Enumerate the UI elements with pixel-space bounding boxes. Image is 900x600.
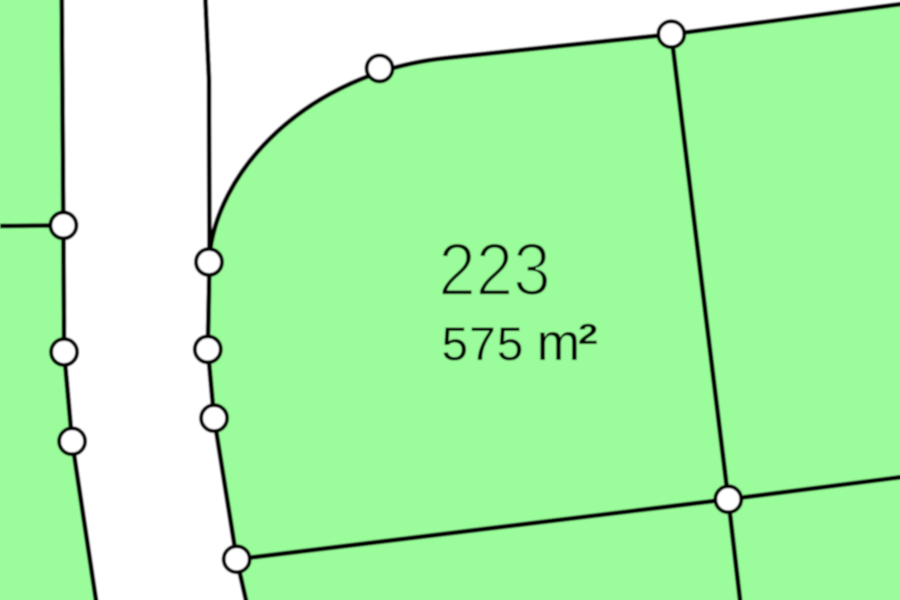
svg-text:223: 223 [438, 229, 550, 312]
svg-text:m: m [537, 314, 580, 372]
svg-text:2: 2 [578, 317, 598, 350]
svg-text:575: 575 [442, 318, 525, 371]
